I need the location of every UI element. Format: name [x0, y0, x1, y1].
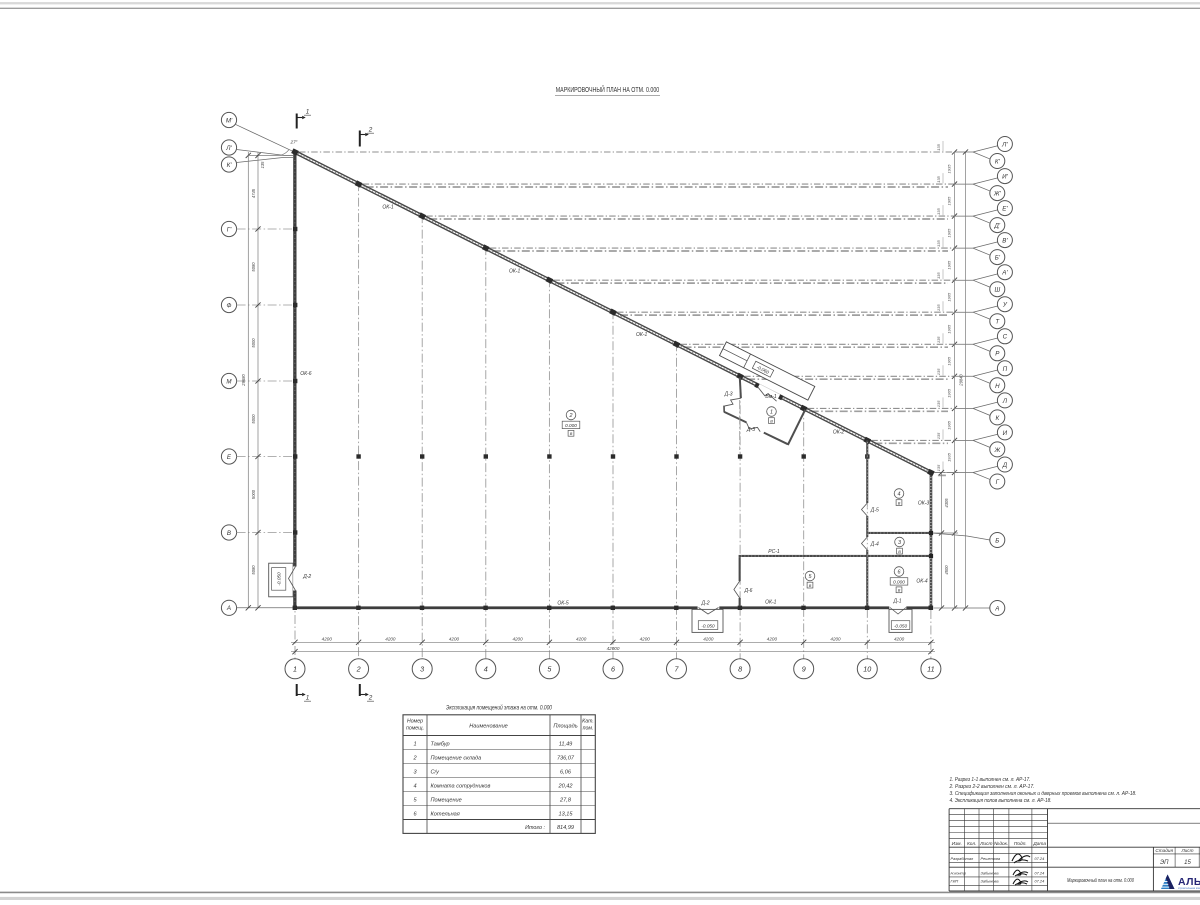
svg-text:135: 135	[936, 207, 941, 214]
svg-text:ОК-5: ОК-5	[557, 600, 569, 606]
svg-text:В: В	[770, 418, 773, 423]
svg-text:1965: 1965	[947, 324, 952, 334]
svg-text:М': М'	[226, 117, 233, 124]
svg-text:5000: 5000	[251, 414, 256, 424]
svg-text:П: П	[1003, 366, 1008, 373]
svg-text:135: 135	[936, 143, 941, 150]
svg-text:10: 10	[863, 665, 871, 674]
svg-text:1965: 1965	[947, 420, 952, 430]
svg-text:2. Разрез 2-2 выполнен см. л.: 2. Разрез 2-2 выполнен см. л. АР-17.	[949, 784, 1035, 790]
svg-text:42000: 42000	[607, 646, 620, 651]
svg-text:4745: 4745	[251, 188, 256, 198]
svg-text:РС-1: РС-1	[768, 549, 780, 555]
svg-text:07.24: 07.24	[1035, 879, 1046, 884]
svg-text:2: 2	[356, 665, 361, 674]
svg-text:135: 135	[936, 304, 941, 311]
svg-text:С/у: С/у	[431, 769, 441, 775]
svg-text:135: 135	[936, 368, 941, 375]
svg-text:В: В	[227, 530, 231, 537]
svg-text:Лист: Лист	[979, 841, 992, 847]
svg-text:4200: 4200	[767, 637, 778, 642]
svg-text:2: 2	[569, 413, 573, 419]
svg-text:1. Разрез 1-1 выполнен см. л.: 1. Разрез 1-1 выполнен см. л. АР-17.	[950, 777, 1031, 783]
svg-text:5000: 5000	[251, 489, 256, 499]
svg-text:29680: 29680	[241, 374, 246, 387]
svg-text:6: 6	[611, 665, 615, 674]
svg-text:5080: 5080	[251, 262, 256, 272]
svg-text:07.24: 07.24	[1035, 870, 1046, 875]
svg-text:13,15: 13,15	[559, 811, 574, 817]
svg-text:В: В	[570, 431, 573, 436]
svg-text:ОК-4: ОК-4	[916, 579, 928, 585]
svg-text:Номер: Номер	[407, 719, 423, 725]
svg-text:Д-4: Д-4	[870, 541, 879, 547]
svg-text:11,49: 11,49	[559, 741, 573, 747]
svg-text:6: 6	[898, 569, 901, 575]
svg-text:1965: 1965	[947, 196, 952, 206]
svg-text:5080: 5080	[251, 565, 256, 575]
svg-text:2: 2	[368, 127, 373, 134]
svg-text:№док.: №док.	[994, 841, 1008, 847]
svg-text:135: 135	[936, 272, 941, 279]
svg-text:1965: 1965	[947, 292, 952, 302]
svg-text:Ж: Ж	[993, 447, 1000, 454]
svg-text:В: В	[898, 549, 901, 554]
svg-text:И': И'	[1002, 173, 1008, 180]
svg-text:Маркировочный план на отм. 0.0: Маркировочный план на отм. 0.000	[1067, 877, 1134, 884]
svg-text:МАРКИРОВОЧНЫЙ ПЛАН НА ОТМ. 0.0: МАРКИРОВОЧНЫЙ ПЛАН НА ОТМ. 0.000	[556, 85, 660, 94]
svg-text:1: 1	[306, 109, 310, 116]
svg-text:-0.050: -0.050	[894, 624, 908, 629]
svg-text:Д: Д	[1002, 462, 1008, 469]
svg-text:1965: 1965	[947, 356, 952, 366]
svg-text:Решетова: Решетова	[981, 856, 1001, 861]
svg-text:Ф: Ф	[227, 302, 232, 309]
svg-text:1965: 1965	[947, 388, 952, 398]
svg-text:4: 4	[413, 783, 416, 789]
svg-text:3. Спецификация заполнения око: 3. Спецификация заполнения оконных и две…	[950, 791, 1137, 797]
svg-text:4200: 4200	[576, 637, 587, 642]
svg-text:1: 1	[293, 665, 297, 674]
svg-text:135: 135	[936, 240, 941, 247]
svg-text:Экспликация помещений этажа на: Экспликация помещений этажа на отм. 0.00…	[446, 705, 552, 712]
svg-text:07.24: 07.24	[1035, 856, 1046, 861]
svg-text:135: 135	[936, 175, 941, 182]
svg-text:135: 135	[260, 161, 265, 169]
svg-text:Забынова: Забынова	[981, 879, 1000, 884]
svg-text:Д-3: Д-3	[746, 427, 755, 433]
svg-text:4500: 4500	[944, 565, 949, 575]
svg-text:В: В	[898, 500, 901, 505]
svg-text:Площадь: Площадь	[553, 724, 577, 730]
svg-text:3: 3	[898, 540, 901, 546]
svg-text:ОК-6: ОК-6	[300, 371, 312, 377]
svg-text:помещ.: помещ.	[406, 726, 424, 732]
svg-text:Ж': Ж'	[993, 190, 1002, 197]
svg-text:Забынова: Забынова	[981, 870, 1000, 875]
svg-text:Б': Б'	[995, 255, 1001, 262]
svg-text:А: А	[994, 605, 999, 612]
svg-text:1: 1	[413, 741, 416, 747]
svg-text:Кол.: Кол.	[967, 841, 976, 847]
svg-text:15: 15	[1184, 860, 1191, 866]
svg-text:0.000: 0.000	[893, 579, 905, 584]
svg-text:Стадия: Стадия	[1155, 848, 1173, 853]
svg-text:1965: 1965	[947, 260, 952, 270]
svg-text:Е': Е'	[1002, 206, 1008, 213]
svg-text:4200: 4200	[894, 637, 905, 642]
svg-text:В: В	[809, 583, 812, 588]
svg-text:Л': Л'	[225, 145, 232, 152]
svg-text:Помещение: Помещение	[431, 797, 462, 803]
svg-text:ОК-1: ОК-1	[509, 269, 521, 275]
svg-text:736,07: 736,07	[557, 755, 575, 761]
svg-text:4305: 4305	[944, 498, 949, 508]
svg-text:3: 3	[420, 665, 424, 674]
svg-text:Кат.: Кат.	[582, 719, 594, 725]
svg-text:5000: 5000	[251, 338, 256, 348]
svg-text:Д-6: Д-6	[744, 588, 753, 594]
svg-text:Тамбур: Тамбур	[431, 741, 450, 747]
svg-text:Дата: Дата	[1032, 841, 1046, 847]
svg-text:27°: 27°	[290, 140, 298, 145]
svg-text:Наименование: Наименование	[469, 724, 508, 730]
svg-text:Д-2: Д-2	[302, 574, 311, 580]
svg-text:Д-3: Д-3	[724, 392, 733, 398]
svg-text:-0.050: -0.050	[701, 624, 715, 629]
svg-text:1: 1	[770, 409, 773, 415]
svg-text:2: 2	[368, 695, 373, 702]
svg-text:Лист: Лист	[1180, 848, 1193, 853]
svg-text:1935: 1935	[947, 164, 952, 174]
svg-text:К': К'	[995, 158, 1001, 165]
svg-text:М: М	[226, 378, 232, 385]
svg-text:В: В	[898, 588, 901, 593]
svg-text:1965: 1965	[947, 228, 952, 238]
svg-text:Вм-1: Вм-1	[765, 394, 776, 400]
svg-text:4: 4	[898, 491, 901, 497]
svg-text:Д-5: Д-5	[870, 507, 879, 513]
svg-text:Разработал: Разработал	[951, 856, 974, 861]
svg-text:АЛЬЯ: АЛЬЯ	[1178, 876, 1200, 888]
svg-text:Изм.: Изм.	[952, 841, 962, 847]
svg-text:Д-2: Д-2	[701, 600, 710, 606]
svg-text:8: 8	[738, 665, 742, 674]
svg-text:Итого :: Итого :	[525, 825, 545, 831]
svg-text:пом.: пом.	[583, 726, 594, 732]
svg-text:Н.контр: Н.контр	[951, 870, 967, 875]
svg-text:ОК-1: ОК-1	[382, 205, 394, 211]
svg-text:-0.050: -0.050	[276, 572, 281, 586]
svg-text:Д-1: Д-1	[893, 599, 902, 605]
svg-text:А': А'	[1001, 270, 1008, 277]
svg-text:Г': Г'	[227, 226, 232, 233]
svg-text:В': В'	[1002, 238, 1008, 245]
svg-text:Ш: Ш	[994, 287, 1000, 294]
svg-text:135: 135	[936, 336, 941, 343]
svg-text:4200: 4200	[640, 637, 651, 642]
svg-text:4200: 4200	[385, 637, 396, 642]
svg-text:Д': Д'	[994, 223, 1001, 230]
svg-text:И: И	[1003, 430, 1008, 437]
svg-text:1: 1	[306, 695, 310, 702]
svg-text:4200: 4200	[512, 637, 523, 642]
svg-text:11: 11	[927, 665, 934, 674]
svg-text:Л: Л	[1002, 398, 1008, 405]
svg-text:1935: 1935	[947, 452, 952, 462]
svg-text:С: С	[1003, 334, 1008, 341]
svg-text:Л': Л'	[1001, 141, 1008, 148]
svg-text:Комната сотрудников: Комната сотрудников	[431, 783, 491, 789]
svg-text:6,06: 6,06	[560, 769, 572, 775]
svg-text:29840: 29840	[958, 374, 963, 387]
svg-text:4200: 4200	[449, 637, 460, 642]
svg-text:135: 135	[936, 464, 941, 471]
svg-text:Подп.: Подп.	[1014, 841, 1027, 847]
svg-text:27,8: 27,8	[559, 797, 572, 803]
svg-text:0.000: 0.000	[565, 423, 577, 428]
svg-text:ГИП: ГИП	[951, 879, 959, 884]
svg-text:4200: 4200	[703, 637, 714, 642]
svg-text:К: К	[995, 415, 999, 422]
svg-text:Котельная: Котельная	[431, 811, 460, 817]
svg-text:4: 4	[484, 665, 488, 674]
svg-text:А: А	[226, 605, 231, 612]
svg-text:4200: 4200	[322, 637, 333, 642]
svg-text:ОК-2: ОК-2	[833, 430, 845, 436]
svg-text:4200: 4200	[830, 637, 841, 642]
svg-text:К': К'	[227, 162, 233, 169]
svg-text:Б: Б	[995, 537, 999, 544]
svg-text:9: 9	[802, 665, 806, 674]
svg-text:135: 135	[936, 400, 941, 407]
svg-text:строительная компания: строительная компания	[1178, 887, 1200, 890]
svg-text:Н: Н	[995, 383, 1000, 390]
svg-text:ОК-1: ОК-1	[765, 599, 777, 605]
svg-text:4. Экспликация полов выполнена: 4. Экспликация полов выполнена см. л. АР…	[950, 798, 1052, 804]
svg-text:ОК-1: ОК-1	[636, 332, 648, 338]
svg-text:ЭП: ЭП	[1160, 860, 1169, 866]
svg-text:Помещение склада: Помещение склада	[431, 755, 482, 761]
svg-text:814,99: 814,99	[557, 825, 574, 831]
svg-text:ОК-3: ОК-3	[918, 501, 930, 507]
svg-text:20,42: 20,42	[558, 783, 574, 789]
svg-text:135: 135	[936, 432, 941, 439]
